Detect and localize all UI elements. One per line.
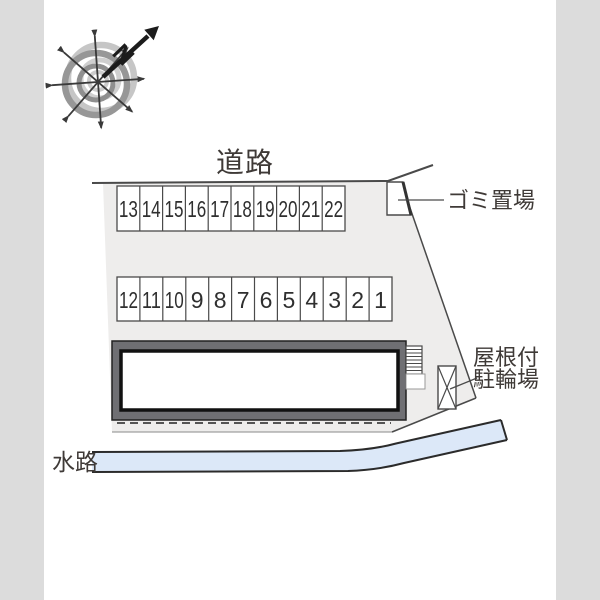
parking-row-upper: 13 14 15 16 17 18 19 20 21 22 <box>117 186 345 231</box>
bicycle-label-line2: 駐輪場 <box>473 367 539 392</box>
stall-number-20: 20 <box>279 196 298 222</box>
stall-number-8: 8 <box>214 287 227 313</box>
building-footprint <box>112 341 406 420</box>
building-stairs <box>406 346 425 389</box>
stall-number-3: 3 <box>328 287 341 313</box>
parking-row-lower: 12 11 10 9 8 7 6 5 4 3 2 1 <box>117 277 392 321</box>
stall-number-18: 18 <box>233 196 252 222</box>
stall-number-17: 17 <box>210 196 229 222</box>
stall-number-9: 9 <box>191 287 204 313</box>
stall-number-19: 19 <box>256 196 275 222</box>
stall-number-16: 16 <box>187 196 206 222</box>
waterway-label: 水路 <box>52 449 98 475</box>
stall-number-11: 11 <box>142 287 161 313</box>
stall-number-15: 15 <box>165 196 184 222</box>
stall-number-2: 2 <box>351 287 364 313</box>
right-margin-band <box>556 0 600 600</box>
compass-icon: N <box>49 26 159 131</box>
stall-number-5: 5 <box>283 287 296 313</box>
stall-number-14: 14 <box>142 196 161 222</box>
stall-number-7: 7 <box>237 287 250 313</box>
stall-number-6: 6 <box>260 287 273 313</box>
building-porch <box>406 374 425 389</box>
building-inner <box>121 351 398 410</box>
stall-number-21: 21 <box>301 196 320 222</box>
stall-number-13: 13 <box>119 196 138 222</box>
site-plan-drawing: N 道路 13 14 15 16 17 18 19 20 21 22 <box>0 0 600 600</box>
garbage-storage: ゴミ置場 <box>387 182 535 215</box>
stall-number-1: 1 <box>374 287 387 313</box>
road-label: 道路 <box>216 147 274 178</box>
stall-number-22: 22 <box>324 196 343 222</box>
site-plan-page: N 道路 13 14 15 16 17 18 19 20 21 22 <box>0 0 600 600</box>
stall-number-4: 4 <box>305 287 318 313</box>
stall-number-10: 10 <box>165 287 184 313</box>
garbage-label: ゴミ置場 <box>447 188 535 213</box>
stall-number-12: 12 <box>119 287 138 313</box>
left-margin-band <box>0 0 44 600</box>
